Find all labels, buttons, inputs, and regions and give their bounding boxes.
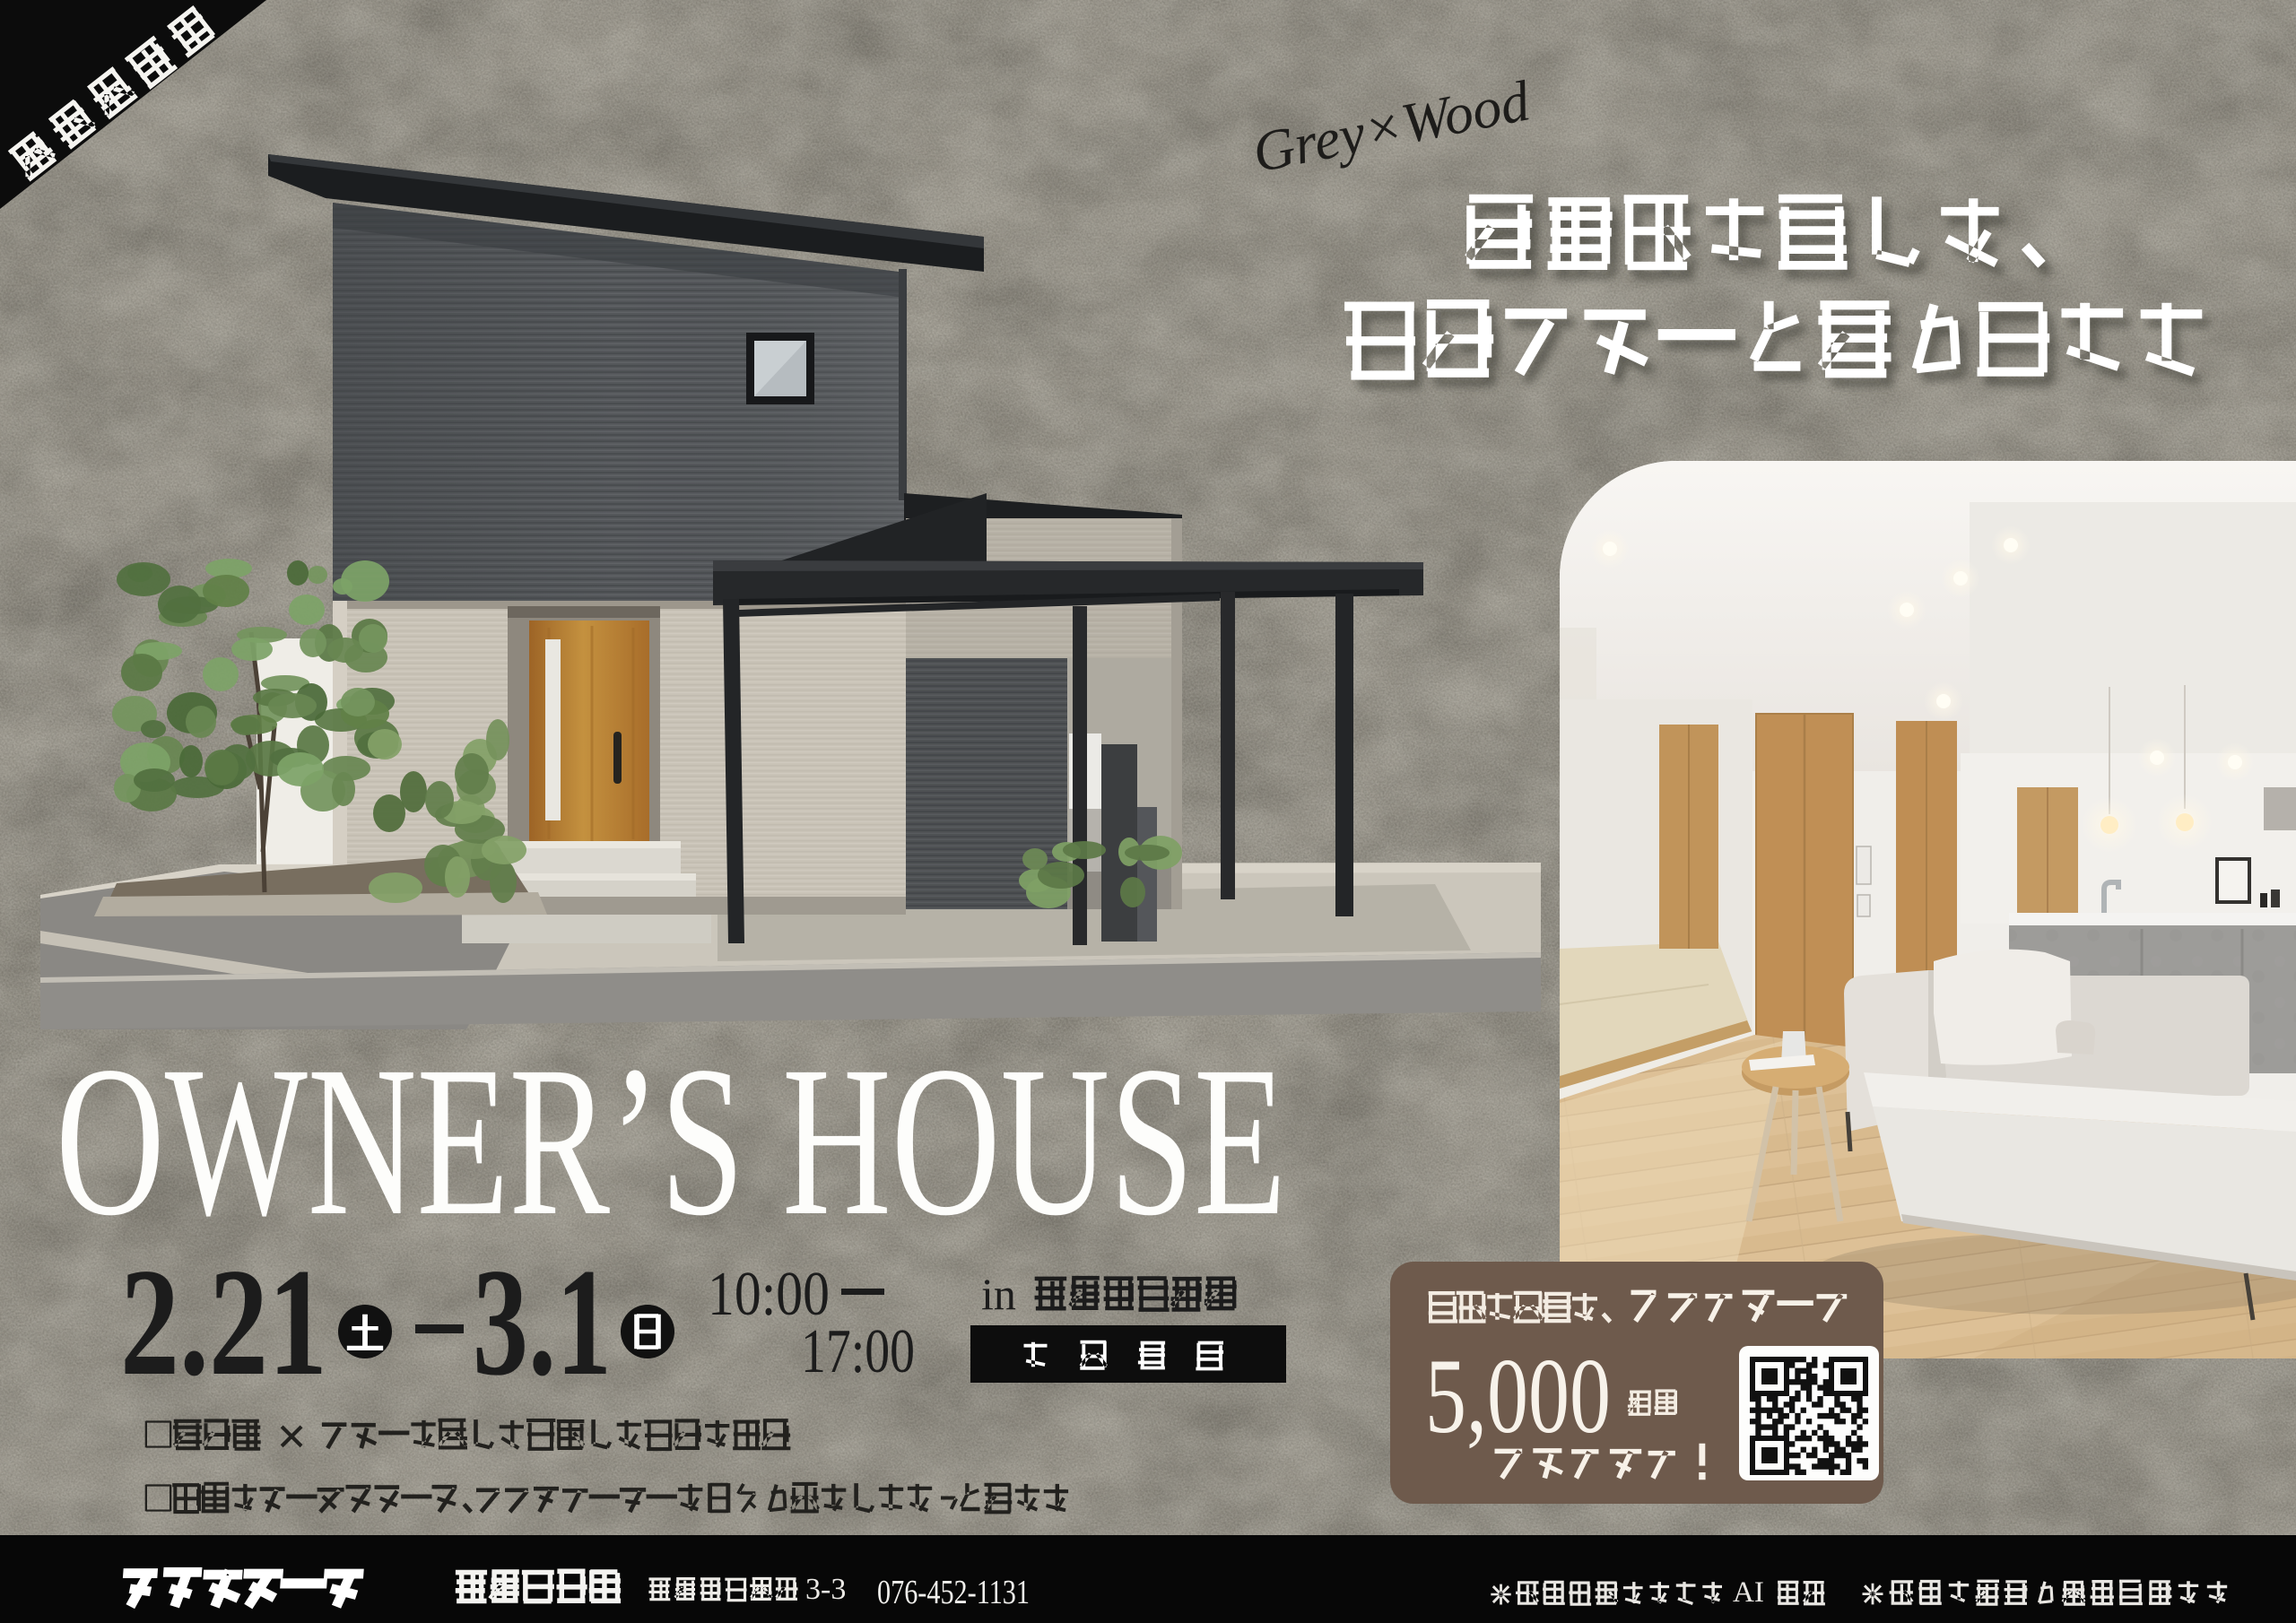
svg-text:in: in: [981, 1269, 1016, 1319]
svg-text:2.21: 2.21: [120, 1237, 327, 1408]
svg-text:3-3: 3-3: [805, 1573, 846, 1606]
svg-text:5,000: 5,000: [1425, 1336, 1611, 1455]
svg-text:076-452-1131: 076-452-1131: [877, 1574, 1030, 1611]
svg-text:3.1: 3.1: [473, 1237, 612, 1408]
svg-text:AI: AI: [1733, 1576, 1764, 1609]
svg-text:17:00: 17:00: [801, 1317, 915, 1386]
svg-text:OWNER’S HOUSE: OWNER’S HOUSE: [56, 1021, 1286, 1260]
